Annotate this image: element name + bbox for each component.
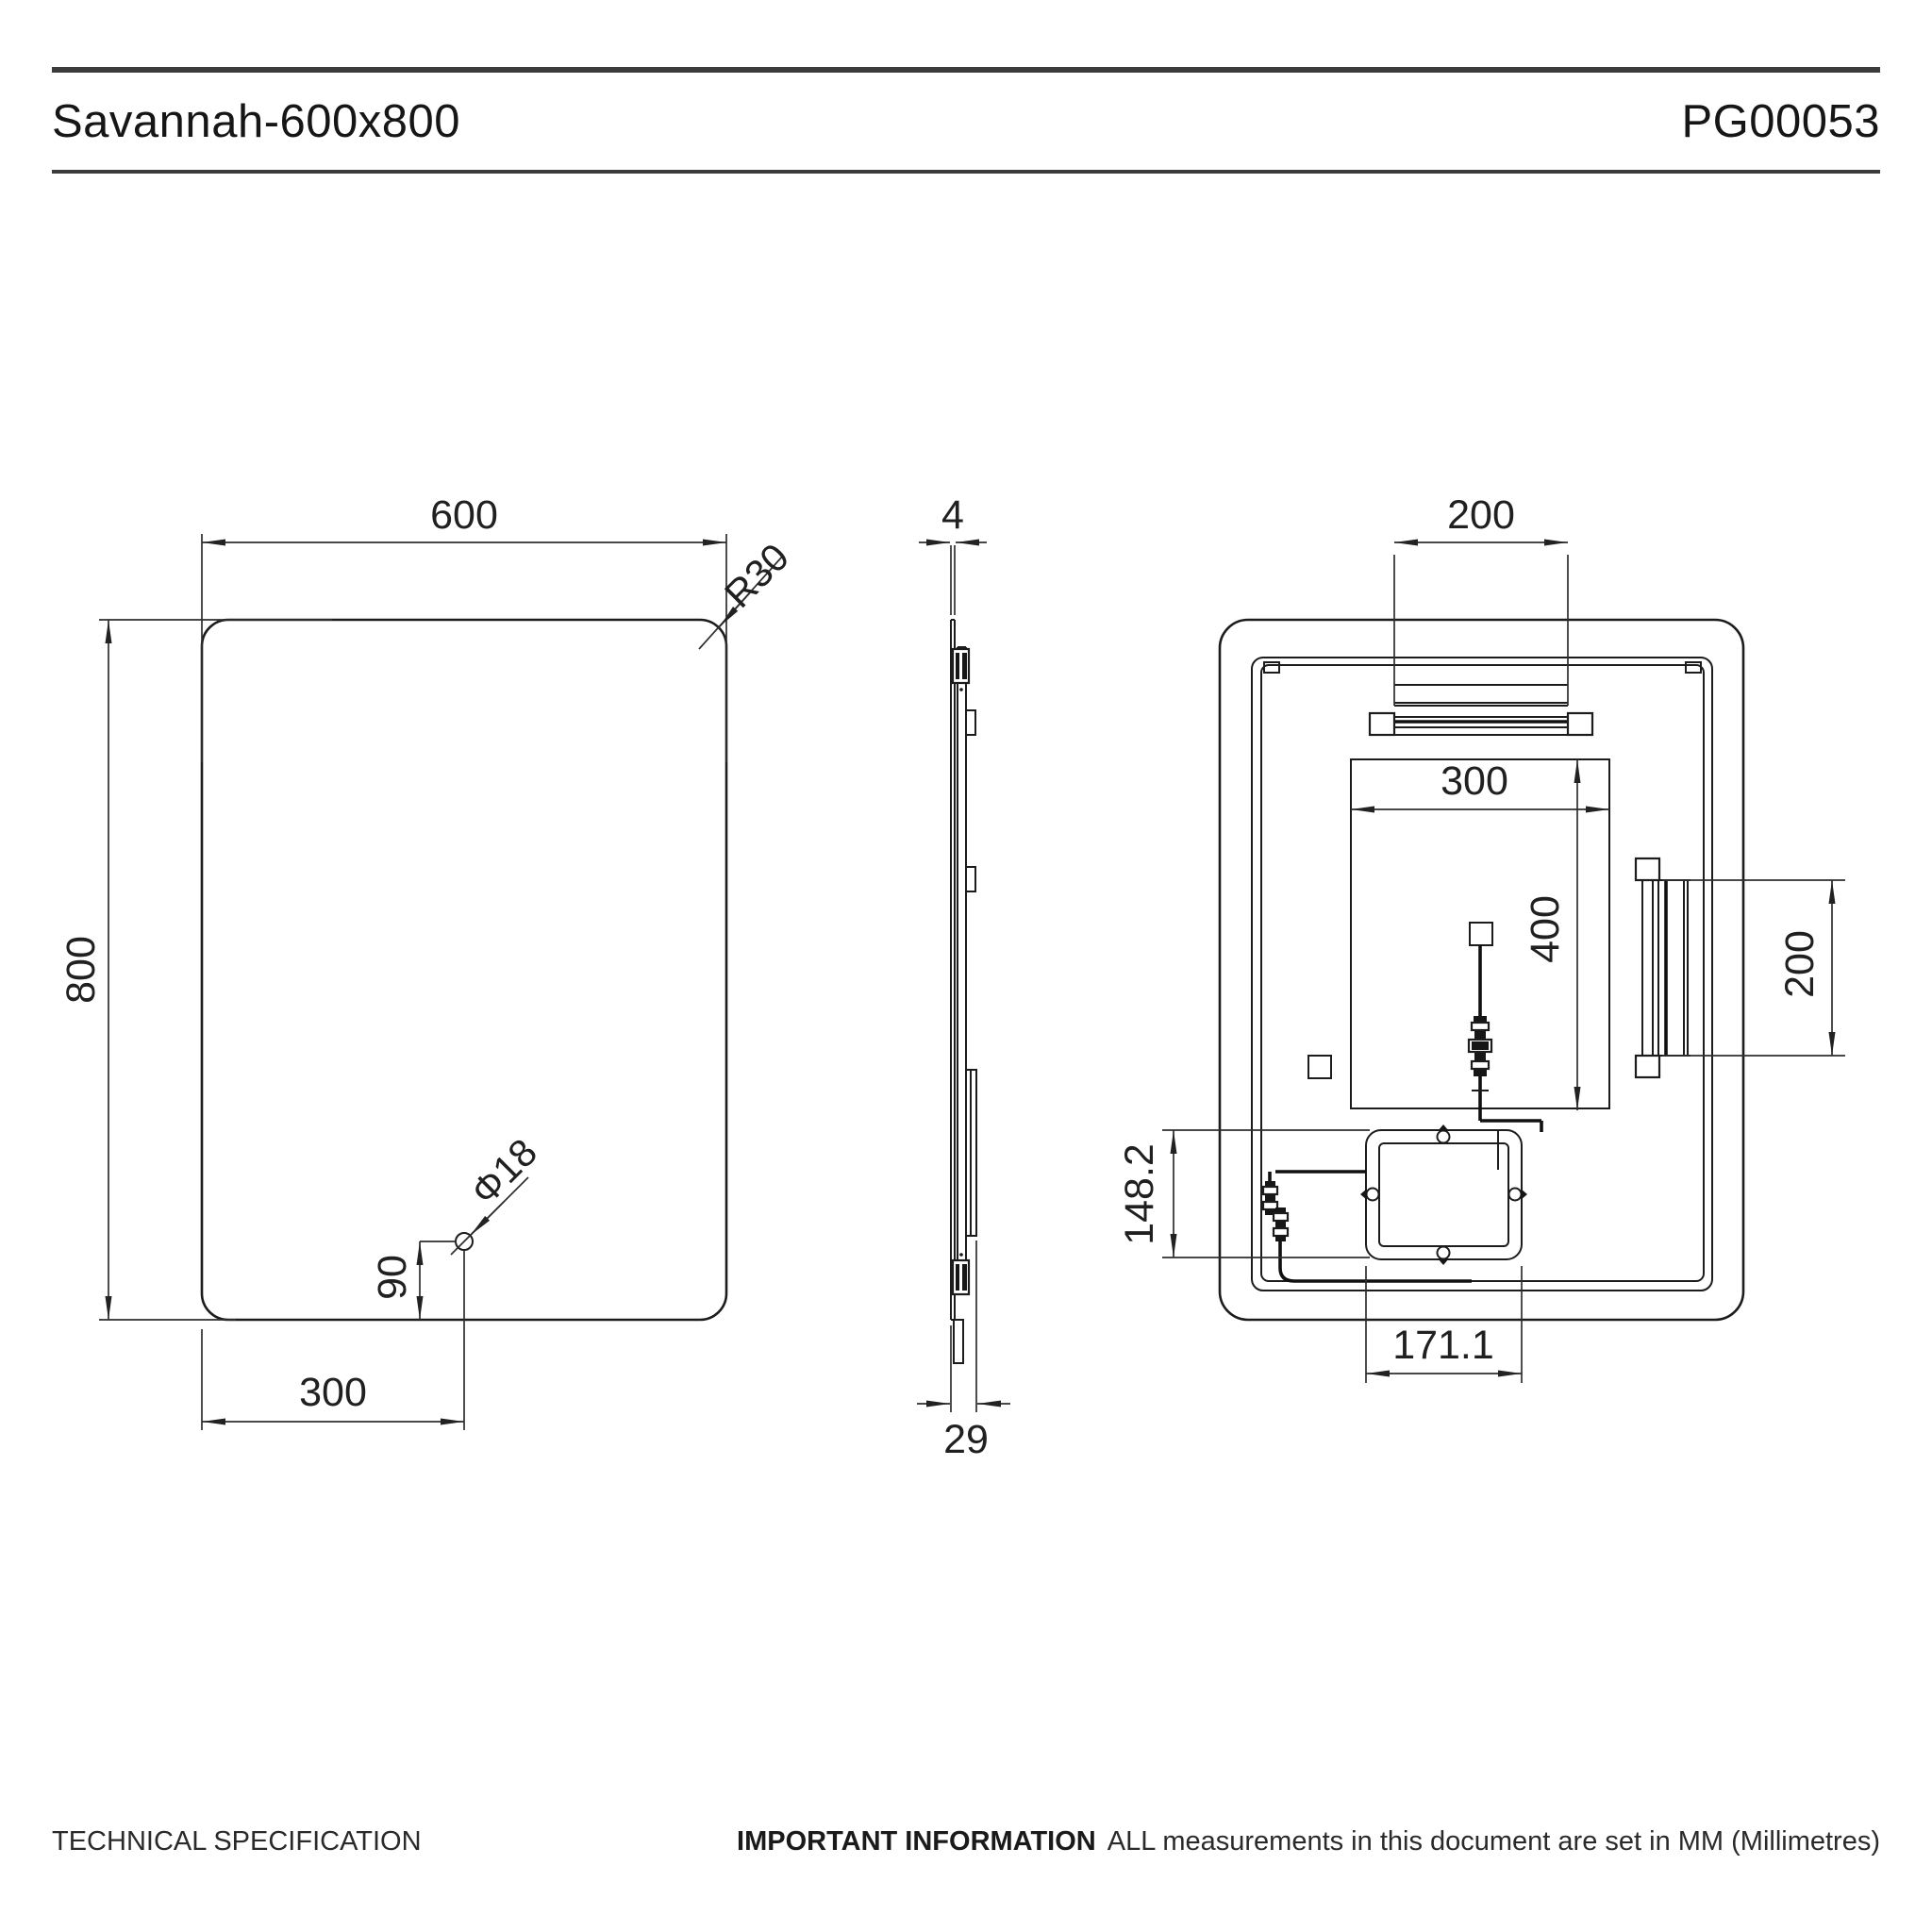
sensor-cable-assembly [1263, 1172, 1472, 1281]
frame-clip-right [1686, 662, 1701, 673]
side-hanging-bracket [1636, 858, 1690, 1077]
footer: TECHNICAL SPECIFICATION IMPORTANT INFORM… [52, 1826, 1880, 1857]
back-view: 200 300 400 [1117, 492, 1845, 1383]
total-depth-label: 29 [943, 1417, 989, 1462]
box-offset-label: 148.2 [1117, 1143, 1162, 1245]
technical-drawing-page: Savannah-600x800 PG00053 600 [0, 0, 1932, 1932]
side-bracket-dimension: 200 [1662, 880, 1845, 1056]
hole-horizontal-label: 300 [299, 1370, 367, 1415]
box-width-dimension: 171.1 [1366, 1266, 1522, 1383]
front-width-dimension: 600 [202, 492, 726, 762]
top-hanging-bracket [1370, 685, 1592, 735]
junction-box [1360, 1124, 1527, 1265]
side-bracket-label: 200 [1777, 930, 1823, 998]
front-view: 600 800 R30 Φ18 [58, 492, 797, 1430]
mirror-outline [202, 620, 726, 1320]
demister-width-label: 300 [1441, 758, 1508, 804]
demister-width-dimension: 300 [1351, 758, 1609, 809]
important-information-label: IMPORTANT INFORMATION [737, 1826, 1096, 1857]
hole-vertical-label: 90 [370, 1255, 415, 1300]
demister-height-dimension: 400 [1523, 759, 1577, 1110]
side-tab-lower [966, 867, 975, 891]
measurement-note: ALL measurements in this document are se… [1096, 1826, 1880, 1857]
back-frame-inner [1261, 665, 1704, 1281]
box-width-label: 171.1 [1392, 1323, 1494, 1368]
hole-diameter-annotation: Φ18 [451, 1130, 545, 1255]
drawing-canvas: 600 800 R30 Φ18 [0, 0, 1932, 1932]
bottom-trim [954, 1320, 963, 1363]
hole-vertical-dimension: 90 [370, 1241, 464, 1430]
front-height-dimension: 800 [58, 620, 332, 1320]
box-offset-dimension: 148.2 [1117, 1130, 1370, 1257]
front-height-label: 800 [58, 936, 104, 1004]
hole-diameter-label: Φ18 [462, 1130, 545, 1213]
side-view: 4 29 [917, 492, 1010, 1462]
footer-right-note: IMPORTANT INFORMATIONALL measurements in… [737, 1826, 1880, 1857]
glass-thickness-label: 4 [941, 492, 964, 538]
front-width-label: 600 [430, 492, 498, 538]
side-tab-upper [966, 710, 975, 735]
frame-profile [958, 647, 966, 1292]
top-bracket-label: 200 [1447, 492, 1515, 538]
corner-radius-annotation: R30 [699, 535, 797, 649]
touch-sensor [1308, 1056, 1331, 1078]
junction-box-profile [966, 1070, 976, 1236]
corner-radius-label: R30 [716, 535, 797, 616]
glass-thickness-dimension: 4 [919, 492, 987, 615]
hole-horizontal-dimension: 300 [202, 1329, 464, 1430]
frame-clip-left [1264, 662, 1279, 673]
glass-profile [951, 620, 955, 1320]
demister-height-label: 400 [1523, 895, 1568, 963]
footer-left-label: TECHNICAL SPECIFICATION [52, 1826, 422, 1857]
top-bracket-dimension: 200 [1394, 492, 1568, 706]
